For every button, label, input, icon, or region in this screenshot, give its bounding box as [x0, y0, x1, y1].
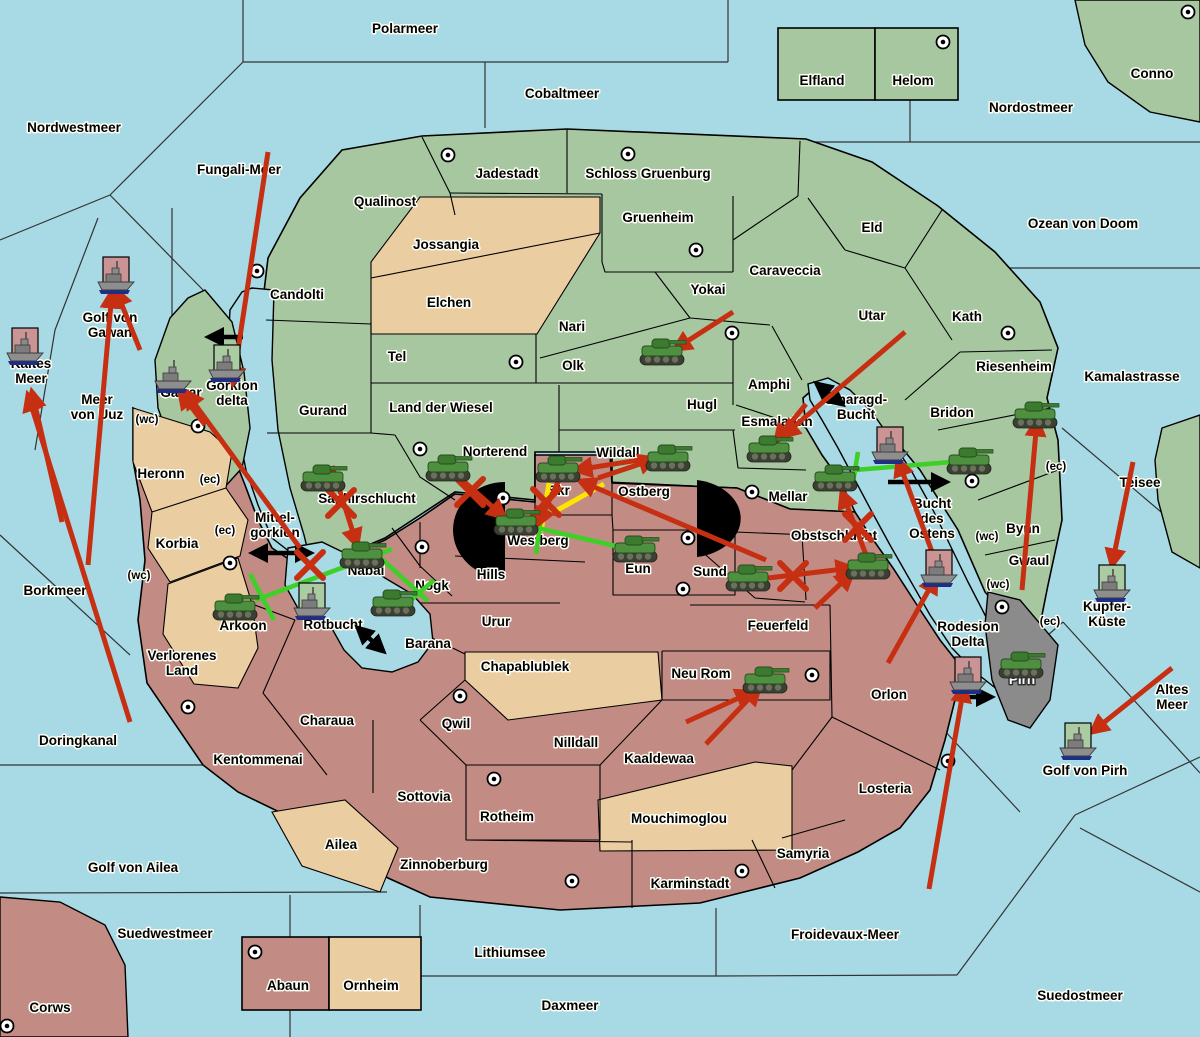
- tank-turret: [352, 542, 370, 551]
- tank-wheel: [431, 472, 437, 478]
- map-canvas[interactable]: PolarmeerCobaltmeerNordostmeerOzean von …: [0, 0, 1200, 1037]
- tank-wheel: [526, 526, 532, 532]
- tank-wheel: [333, 482, 339, 488]
- region-label-helom: Helom: [892, 73, 933, 88]
- tank-wheel: [363, 559, 369, 565]
- supply-center-feuerfeld: [806, 669, 819, 682]
- tank-wheel: [236, 611, 242, 617]
- region-label-caraveccia: Caraveccia: [749, 263, 821, 278]
- ship-waterline: [99, 290, 130, 294]
- sea-label-suedwestmeer: Suedwestmeer: [117, 926, 213, 941]
- region-label-karminstadt: Karminstadt: [651, 876, 730, 891]
- ship-hull: [950, 682, 986, 690]
- tank-barrel: [642, 538, 659, 542]
- region-label-feuerfeld: Feuerfeld: [748, 618, 809, 633]
- tank-wheel: [324, 482, 330, 488]
- ship-bridge: [308, 594, 315, 600]
- sea-label-polarmeer: Polarmeer: [372, 21, 439, 36]
- supply-center-yokai: [726, 327, 739, 340]
- supply-center-norterend: [414, 443, 427, 456]
- sea-label-daxmeer: Daxmeer: [541, 998, 599, 1013]
- region-label-eld: Eld: [861, 220, 882, 235]
- tank-wheel: [952, 465, 958, 471]
- war-map: PolarmeerCobaltmeerNordostmeerOzean von …: [0, 0, 1200, 1037]
- region-label-abaun: Abaun: [267, 978, 309, 993]
- tank-turret: [825, 465, 843, 474]
- tank-wheel: [748, 684, 754, 690]
- region-label-conno: Conno: [1131, 66, 1174, 81]
- tank-barrel: [400, 592, 417, 596]
- supply-center-karminstadt: [736, 865, 749, 878]
- region-label-amphi: Amphi: [748, 377, 790, 392]
- region-label-ornheim: Ornheim: [343, 978, 399, 993]
- region-label-jadestadt: Jadestadt: [475, 166, 539, 181]
- supply-center-dot: [694, 248, 699, 253]
- ship-waterline: [1061, 756, 1092, 760]
- tank-wheel: [660, 462, 666, 468]
- sea-label-rodesion: Rodesion: [937, 619, 999, 634]
- ship-superstructure: [15, 345, 30, 353]
- tank-wheel: [550, 473, 556, 479]
- sea-label-cobaltmeer: Cobaltmeer: [525, 86, 600, 101]
- sea-label-doringkanal: Doringkanal: [39, 733, 117, 748]
- supply-center-corws: [1, 1020, 14, 1033]
- tank-wheel: [766, 684, 772, 690]
- supply-center-rotheim: [488, 773, 501, 786]
- ship-hull: [294, 608, 330, 616]
- supply-center-dot: [570, 879, 575, 884]
- tank-wheel: [517, 526, 523, 532]
- supply-center-dot: [1006, 331, 1011, 336]
- ornheim-box: [329, 937, 421, 1010]
- supply-center-dot: [626, 152, 631, 157]
- sea-label-suedostmeer: Suedostmeer: [1037, 988, 1123, 1003]
- tank-wheel: [827, 482, 833, 488]
- ship-waterline: [873, 460, 904, 464]
- supply-center-dot: [740, 869, 745, 874]
- sea-label-altes: Altes: [1155, 682, 1188, 697]
- supply-center-dot: [1186, 10, 1191, 15]
- supply-center-dot: [253, 950, 258, 955]
- tank-wheel: [645, 356, 651, 362]
- sea-label-nordwestmeer: Nordwestmeer: [27, 120, 122, 135]
- tank-turret: [506, 509, 524, 518]
- region-label-kath: Kath: [952, 309, 982, 324]
- region-label-utar: Utar: [858, 308, 886, 323]
- ship-bridge: [1108, 576, 1115, 582]
- supply-center-dot: [810, 673, 815, 678]
- region-label-urur: Urur: [482, 614, 511, 629]
- tank-wheel: [1013, 669, 1019, 675]
- region-label-losteria: Losteria: [859, 781, 912, 796]
- tank-barrel: [523, 511, 540, 515]
- supply-center-nabai: [416, 541, 429, 554]
- tank-wheel: [678, 462, 684, 468]
- region-label-corws: Corws: [29, 1000, 70, 1015]
- tank-wheel: [752, 453, 758, 459]
- supply-center-dot: [750, 490, 755, 495]
- supply-center-helom: [937, 36, 950, 49]
- tank-wheel: [636, 553, 642, 559]
- tank-wheel: [1018, 419, 1024, 425]
- tank-barrel: [330, 467, 347, 471]
- tank-wheel: [376, 607, 382, 613]
- supply-center-kentommenai: [182, 701, 195, 714]
- region-label-orlon: Orlon: [871, 687, 907, 702]
- coast-tag: (wc): [976, 531, 999, 543]
- tank-barrel: [242, 596, 259, 600]
- tank-wheel: [559, 473, 565, 479]
- tank-wheel: [770, 453, 776, 459]
- tank-barrel: [842, 467, 859, 471]
- coast-tag: (wc): [128, 570, 151, 582]
- region-label-rotheim: Rotheim: [480, 809, 534, 824]
- tank-wheel: [654, 356, 660, 362]
- supply-center-dot: [186, 705, 191, 710]
- tank-wheel: [227, 611, 233, 617]
- coast-tag: (ec): [1040, 616, 1061, 628]
- tank-wheel: [860, 570, 866, 576]
- tank-turret: [1011, 652, 1029, 661]
- ship-bridge: [112, 268, 119, 274]
- tank-wheel: [970, 465, 976, 471]
- tank-turret: [759, 436, 777, 445]
- supply-center-mellar: [746, 486, 759, 499]
- tank-wheel: [761, 453, 767, 459]
- tank-wheel: [672, 356, 678, 362]
- tank-wheel: [757, 684, 763, 690]
- tank-wheel: [627, 553, 633, 559]
- region-label-bridon: Bridon: [930, 405, 974, 420]
- region-label-tel: Tel: [388, 349, 407, 364]
- ship-bridge: [964, 668, 971, 674]
- tank-wheel: [731, 582, 737, 588]
- coast-tag: (wc): [136, 414, 159, 426]
- region-label-gurand: Gurand: [299, 403, 347, 418]
- region-label-schloss-gruenburg: Schloss Gruenburg: [585, 166, 710, 181]
- ship-hull: [921, 575, 957, 583]
- supply-center-dot: [228, 561, 233, 566]
- tank-wheel: [779, 453, 785, 459]
- coast-tag: (wc): [987, 579, 1010, 591]
- tank-turret: [652, 339, 670, 348]
- ship-hull: [872, 452, 908, 460]
- supply-center-dot: [446, 153, 451, 158]
- supply-center-westberg: [497, 492, 510, 505]
- tank-barrel: [875, 555, 892, 559]
- ship-waterline: [156, 389, 187, 393]
- tank-wheel: [758, 582, 764, 588]
- tank-turret: [658, 445, 676, 454]
- ship-superstructure: [1102, 582, 1117, 590]
- supply-center-dot: [514, 360, 519, 365]
- tank-wheel: [878, 570, 884, 576]
- sea-label-froidevaux-meer: Froidevaux-Meer: [791, 927, 900, 942]
- tank-wheel: [749, 582, 755, 588]
- ship-hull: [7, 353, 43, 361]
- region-label-candolti: Candolti: [270, 287, 324, 302]
- tank-wheel: [961, 465, 967, 471]
- region-label-gwaul: Gwaul: [1009, 553, 1050, 568]
- region-label-chapablublek: Chapablublek: [481, 659, 570, 674]
- ship-hull: [1060, 748, 1096, 756]
- region-label-olk: Olk: [562, 358, 584, 373]
- region-label-gruenheim: Gruenheim: [622, 210, 693, 225]
- region-label-kentommenai: Kentommenai: [213, 752, 302, 767]
- supply-center-dot: [730, 331, 735, 336]
- sea-label-meer: Meer: [81, 392, 113, 407]
- ship-superstructure: [163, 373, 178, 381]
- tank-turret: [858, 553, 876, 562]
- supply-center-dot: [1000, 605, 1005, 610]
- region-label-mellar: Mellar: [768, 489, 808, 504]
- sea-label-lithiumsee: Lithiumsee: [474, 945, 546, 960]
- region-label-hills: Hills: [477, 567, 506, 582]
- region-label-sottovia: Sottovia: [397, 789, 451, 804]
- region-label-norterend: Norterend: [463, 444, 528, 459]
- ship-superstructure: [880, 444, 895, 452]
- tank-barrel: [1042, 404, 1059, 408]
- sea-label-borkmeer: Borkmeer: [23, 583, 87, 598]
- region-label-bynn: Bynn: [1006, 521, 1040, 536]
- ship-waterline: [951, 690, 982, 694]
- region-label-riesenheim: Riesenheim: [976, 359, 1052, 374]
- tank-wheel: [1027, 419, 1033, 425]
- region-label-samyria: Samyria: [777, 846, 830, 861]
- sea-label-bucht: Ostens: [909, 526, 955, 541]
- tank-turret: [383, 590, 401, 599]
- tank-wheel: [372, 559, 378, 565]
- tank-barrel: [669, 341, 686, 345]
- supply-center-pirh: [996, 601, 1009, 614]
- coast-tag: (ec): [1046, 461, 1067, 473]
- tank-barrel: [772, 669, 789, 673]
- sea-label-kaltes: Meer: [15, 371, 47, 386]
- supply-center-eun: [677, 583, 690, 596]
- supply-center-dot: [458, 694, 463, 699]
- tank-barrel: [369, 544, 386, 548]
- region-label-wildall: Wildall: [596, 445, 639, 460]
- region-label-kaaldewaa: Kaaldewaa: [624, 751, 694, 766]
- tank-wheel: [740, 582, 746, 588]
- tank-wheel: [306, 482, 312, 488]
- ship-superstructure: [1068, 740, 1083, 748]
- tank-wheel: [394, 607, 400, 613]
- region-label-verlorenes: Verlorenes: [147, 648, 216, 663]
- tank-wheel: [851, 570, 857, 576]
- tank-wheel: [618, 553, 624, 559]
- supply-center-kath: [1002, 327, 1015, 340]
- tank-wheel: [354, 559, 360, 565]
- supply-center-abaun: [249, 946, 262, 959]
- region-label-zinnoberburg: Zinnoberburg: [400, 857, 488, 872]
- tank-turret: [625, 536, 643, 545]
- region-label-elchen: Elchen: [427, 295, 471, 310]
- tank-turret: [959, 448, 977, 457]
- coast-tag: (ec): [200, 474, 221, 486]
- supply-center-tel: [510, 356, 523, 369]
- tank-wheel: [1045, 419, 1051, 425]
- ship-waterline: [8, 361, 39, 365]
- tank-barrel: [675, 447, 692, 451]
- ship-superstructure: [929, 567, 944, 575]
- tank-wheel: [1022, 669, 1028, 675]
- tank-wheel: [775, 684, 781, 690]
- region-label-qualinost: Qualinost: [354, 194, 417, 209]
- tank-barrel: [1028, 654, 1045, 658]
- region-label-land-der-wiesel: Land der Wiesel: [389, 400, 492, 415]
- sea-label-nordostmeer: Nordostmeer: [989, 100, 1074, 115]
- tank-wheel: [651, 462, 657, 468]
- ship-waterline: [295, 616, 326, 620]
- ship-waterline: [922, 583, 953, 587]
- ship-bridge: [223, 356, 230, 362]
- supply-center-dot: [970, 479, 975, 484]
- supply-center-dot: [5, 1024, 10, 1029]
- supply-center-dot: [492, 777, 497, 782]
- sea-label-gorkion: delta: [216, 393, 248, 408]
- tank-wheel: [979, 465, 985, 471]
- sea-label-kamalastrasse: Kamalastrasse: [1084, 369, 1180, 384]
- region-label-hugl: Hugl: [687, 397, 717, 412]
- supply-center-ostberg: [682, 532, 695, 545]
- ship-hull: [98, 282, 134, 290]
- region-label-barana: Barana: [405, 636, 451, 651]
- supply-center-dot: [255, 269, 260, 274]
- ship-waterline: [210, 378, 241, 382]
- tank-wheel: [541, 473, 547, 479]
- ship-bridge: [935, 561, 942, 567]
- sea-label-golf-von-pirh: Golf von Pirh: [1043, 763, 1128, 778]
- region-label-kupfer-: Küste: [1088, 614, 1126, 629]
- supply-center-conno: [1182, 6, 1195, 19]
- supply-center-schloss-gruenburg: [622, 148, 635, 161]
- region-label-jossangia: Jossangia: [413, 237, 480, 252]
- region-label-sund: Sund: [693, 564, 727, 579]
- tank-wheel: [1036, 419, 1042, 425]
- supply-center-dot: [941, 40, 946, 45]
- tank-turret: [548, 456, 566, 465]
- coast-tag: (ec): [215, 525, 236, 537]
- ship-hull: [1094, 590, 1130, 598]
- supply-center-dot: [196, 424, 201, 429]
- tank-wheel: [499, 526, 505, 532]
- region-label-elfland: Elfland: [799, 73, 844, 88]
- supply-center-dot: [681, 587, 686, 592]
- elfland-box: [778, 28, 875, 100]
- supply-center-dot: [501, 496, 506, 501]
- tank-wheel: [1004, 669, 1010, 675]
- supply-center-dot: [418, 447, 423, 452]
- region-label-nilldall: Nilldall: [554, 735, 598, 750]
- tank-wheel: [645, 553, 651, 559]
- region-label-ailea: Ailea: [325, 837, 358, 852]
- supply-center-bridon: [966, 475, 979, 488]
- region-label-ostberg: Ostberg: [618, 484, 670, 499]
- ship-hull: [155, 381, 191, 389]
- tank-wheel: [315, 482, 321, 488]
- tank-wheel: [245, 611, 251, 617]
- tank-wheel: [345, 559, 351, 565]
- tank-wheel: [440, 472, 446, 478]
- region-label-mouchimoglou: Mouchimoglou: [631, 811, 727, 826]
- supply-center-qwil: [454, 690, 467, 703]
- supply-center-arkoon: [224, 557, 237, 570]
- tank-wheel: [669, 462, 675, 468]
- tank-wheel: [403, 607, 409, 613]
- tank-wheel: [568, 473, 574, 479]
- region-label-qwil: Qwil: [442, 716, 471, 731]
- tank-barrel: [455, 457, 472, 461]
- tank-turret: [1025, 402, 1043, 411]
- region-label-charaua: Charaua: [300, 713, 355, 728]
- ship-bridge: [1074, 734, 1081, 740]
- supply-center-jadestadt: [442, 149, 455, 162]
- tank-barrel: [755, 567, 772, 571]
- tank-wheel: [845, 482, 851, 488]
- tank-barrel: [565, 458, 582, 462]
- sea-label-fungali-meer: Fungali-Meer: [197, 162, 282, 177]
- tank-turret: [755, 667, 773, 676]
- region-label-neu-rom: Neu Rom: [671, 666, 730, 681]
- supply-center-zinnoberburg: [566, 875, 579, 888]
- tank-wheel: [508, 526, 514, 532]
- tank-wheel: [218, 611, 224, 617]
- ship-superstructure: [217, 362, 232, 370]
- tank-wheel: [385, 607, 391, 613]
- tank-wheel: [449, 472, 455, 478]
- region-label-yokai: Yokai: [690, 282, 725, 297]
- region-label-eun: Eun: [625, 561, 651, 576]
- tank-turret: [313, 465, 331, 474]
- tank-wheel: [818, 482, 824, 488]
- tank-wheel: [836, 482, 842, 488]
- sea-label-meer: von Uuz: [71, 407, 124, 422]
- sea-label-altes: Meer: [1156, 697, 1188, 712]
- ship-superstructure: [106, 274, 121, 282]
- sea-label-smaragd-: Bucht: [837, 407, 876, 422]
- supply-center-gruenheim: [690, 244, 703, 257]
- tank-turret: [438, 455, 456, 464]
- tank-barrel: [776, 438, 793, 442]
- region-label-nari: Nari: [559, 319, 585, 334]
- supply-center-dot: [420, 545, 425, 550]
- region-label-verlorenes: Land: [166, 663, 198, 678]
- ship-bridge: [886, 438, 893, 444]
- tank-wheel: [869, 570, 875, 576]
- tank-turret: [225, 594, 243, 603]
- tank-wheel: [663, 356, 669, 362]
- tank-turret: [738, 565, 756, 574]
- ship-bridge: [169, 367, 176, 373]
- supply-center-dot: [686, 536, 691, 541]
- tank-wheel: [1031, 669, 1037, 675]
- ship-bridge: [21, 339, 28, 345]
- sea-label-golf-von-ailea: Golf von Ailea: [88, 860, 179, 875]
- ship-hull: [209, 370, 245, 378]
- region-label-heronn: Heronn: [137, 466, 184, 481]
- sea-label-rodesion: Delta: [951, 634, 985, 649]
- tank-wheel: [458, 472, 464, 478]
- region-label-korbia: Korbia: [156, 536, 199, 551]
- ship-waterline: [1095, 598, 1126, 602]
- sea-label-ozean-von-doom: Ozean von Doom: [1028, 216, 1138, 231]
- tank-barrel: [976, 450, 993, 454]
- ship-superstructure: [302, 600, 317, 608]
- ship-superstructure: [958, 674, 973, 682]
